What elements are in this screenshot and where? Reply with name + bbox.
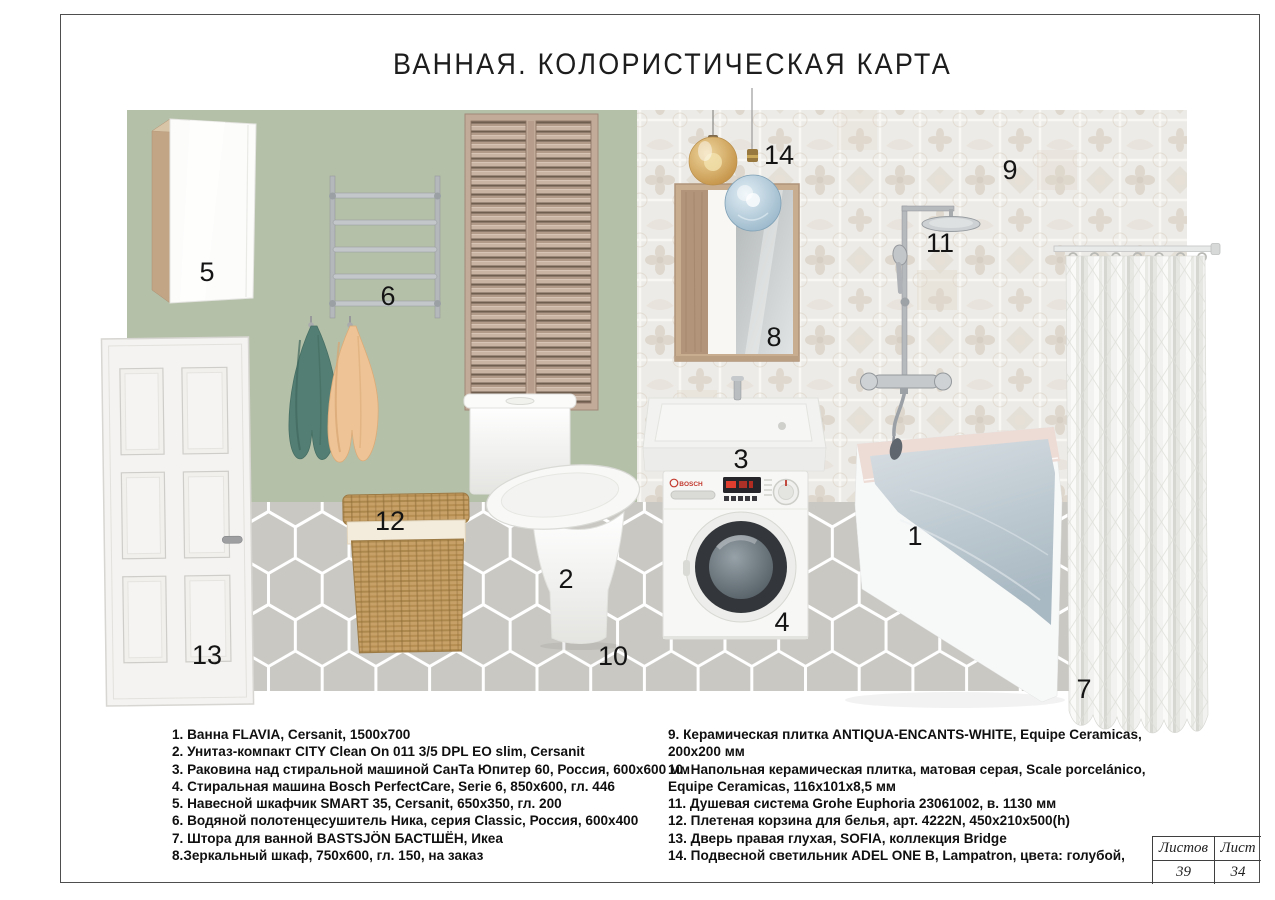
item-number-11: 11	[926, 228, 954, 258]
legend-left-column: 1. Ванна FLAVIA, Cersanit, 1500x700 2. У…	[172, 726, 690, 864]
legend-item: 5. Навесной шкафчик SMART 35, Cersanit, …	[172, 795, 690, 812]
bosch-logo: BOSCH	[679, 481, 703, 488]
legend-item: 3. Раковина над стиральной машиной СанТа…	[172, 761, 690, 778]
item-number-9: 9	[1002, 155, 1017, 185]
mixer-knob-right	[935, 373, 952, 390]
item-number-14: 14	[764, 140, 794, 170]
flush-button	[506, 398, 534, 405]
shower-curtain	[1054, 244, 1220, 734]
item-number-10: 10	[598, 641, 628, 671]
item-number-1: 1	[907, 521, 922, 551]
item-number-2: 2	[558, 564, 573, 594]
sheet-number-label: Лист	[1214, 836, 1261, 860]
item-number-7: 7	[1076, 674, 1091, 704]
legend-right-column: 9. Керамическая плитка ANTIQUA-ENCANTS-W…	[668, 726, 1146, 864]
legend-item: 6. Водяной полотенцесушитель Ника, серия…	[172, 812, 690, 829]
louver-shutters	[465, 114, 598, 410]
item-number-3: 3	[733, 444, 748, 474]
legend-item: 7. Штора для ванной BASTSJÖN БАСТШЁН, Ик…	[172, 830, 690, 847]
door	[101, 337, 253, 706]
legend-item: 4. Стиральная машина Bosch PerfectCare, …	[172, 778, 690, 795]
legend-item: 200x200 мм	[668, 743, 1146, 760]
sheet-number-value: 34	[1214, 860, 1261, 884]
shower-mixer	[873, 375, 939, 388]
legend-item: 10. Напольная керамическая плитка, матов…	[668, 761, 1146, 778]
laundry-basket	[343, 493, 472, 653]
legend-item: Equipe Ceramicas, 116x101x8,5 мм	[668, 778, 1146, 795]
design-sheet: ВАННАЯ. КОЛОРИСТИЧЕСКАЯ КАРТА	[0, 0, 1275, 900]
legend-item: 11. Душевая система Grohe Euphoria 23061…	[668, 795, 1146, 812]
legend-item: 9. Керамическая плитка ANTIQUA-ENCANTS-W…	[668, 726, 1146, 743]
detergent-drawer	[671, 491, 715, 499]
legend-item: 1. Ванна FLAVIA, Cersanit, 1500x700	[172, 726, 690, 743]
sheets-total-label: Листов	[1152, 836, 1214, 860]
item-number-4: 4	[774, 607, 789, 637]
mixer-knob-left	[861, 373, 878, 390]
legend-item: 14. Подвесной светильник ADEL ONE B, Lam…	[668, 847, 1146, 864]
item-number-5: 5	[199, 257, 214, 287]
door-handle	[222, 536, 242, 543]
title-block-table: Листов Лист 39 34	[1152, 836, 1261, 884]
curtain-rod	[1054, 246, 1214, 252]
item-number-8: 8	[766, 322, 781, 352]
washer-sink-unit: BOSCH	[643, 376, 826, 639]
legend-item: 12. Плетеная корзина для белья, арт. 422…	[668, 812, 1146, 829]
legend-item: 2. Унитаз-компакт CITY Clean On 011 3/5 …	[172, 743, 690, 760]
legend-item: 8.Зеркальный шкаф, 750x600, гл. 150, на …	[172, 847, 690, 864]
item-number-12: 12	[375, 506, 405, 536]
item-number-6: 6	[380, 281, 395, 311]
legend-item: 13. Дверь правая глухая, SOFIA, коллекци…	[668, 830, 1146, 847]
sheets-total-value: 39	[1152, 860, 1214, 884]
item-number-13: 13	[192, 640, 222, 670]
